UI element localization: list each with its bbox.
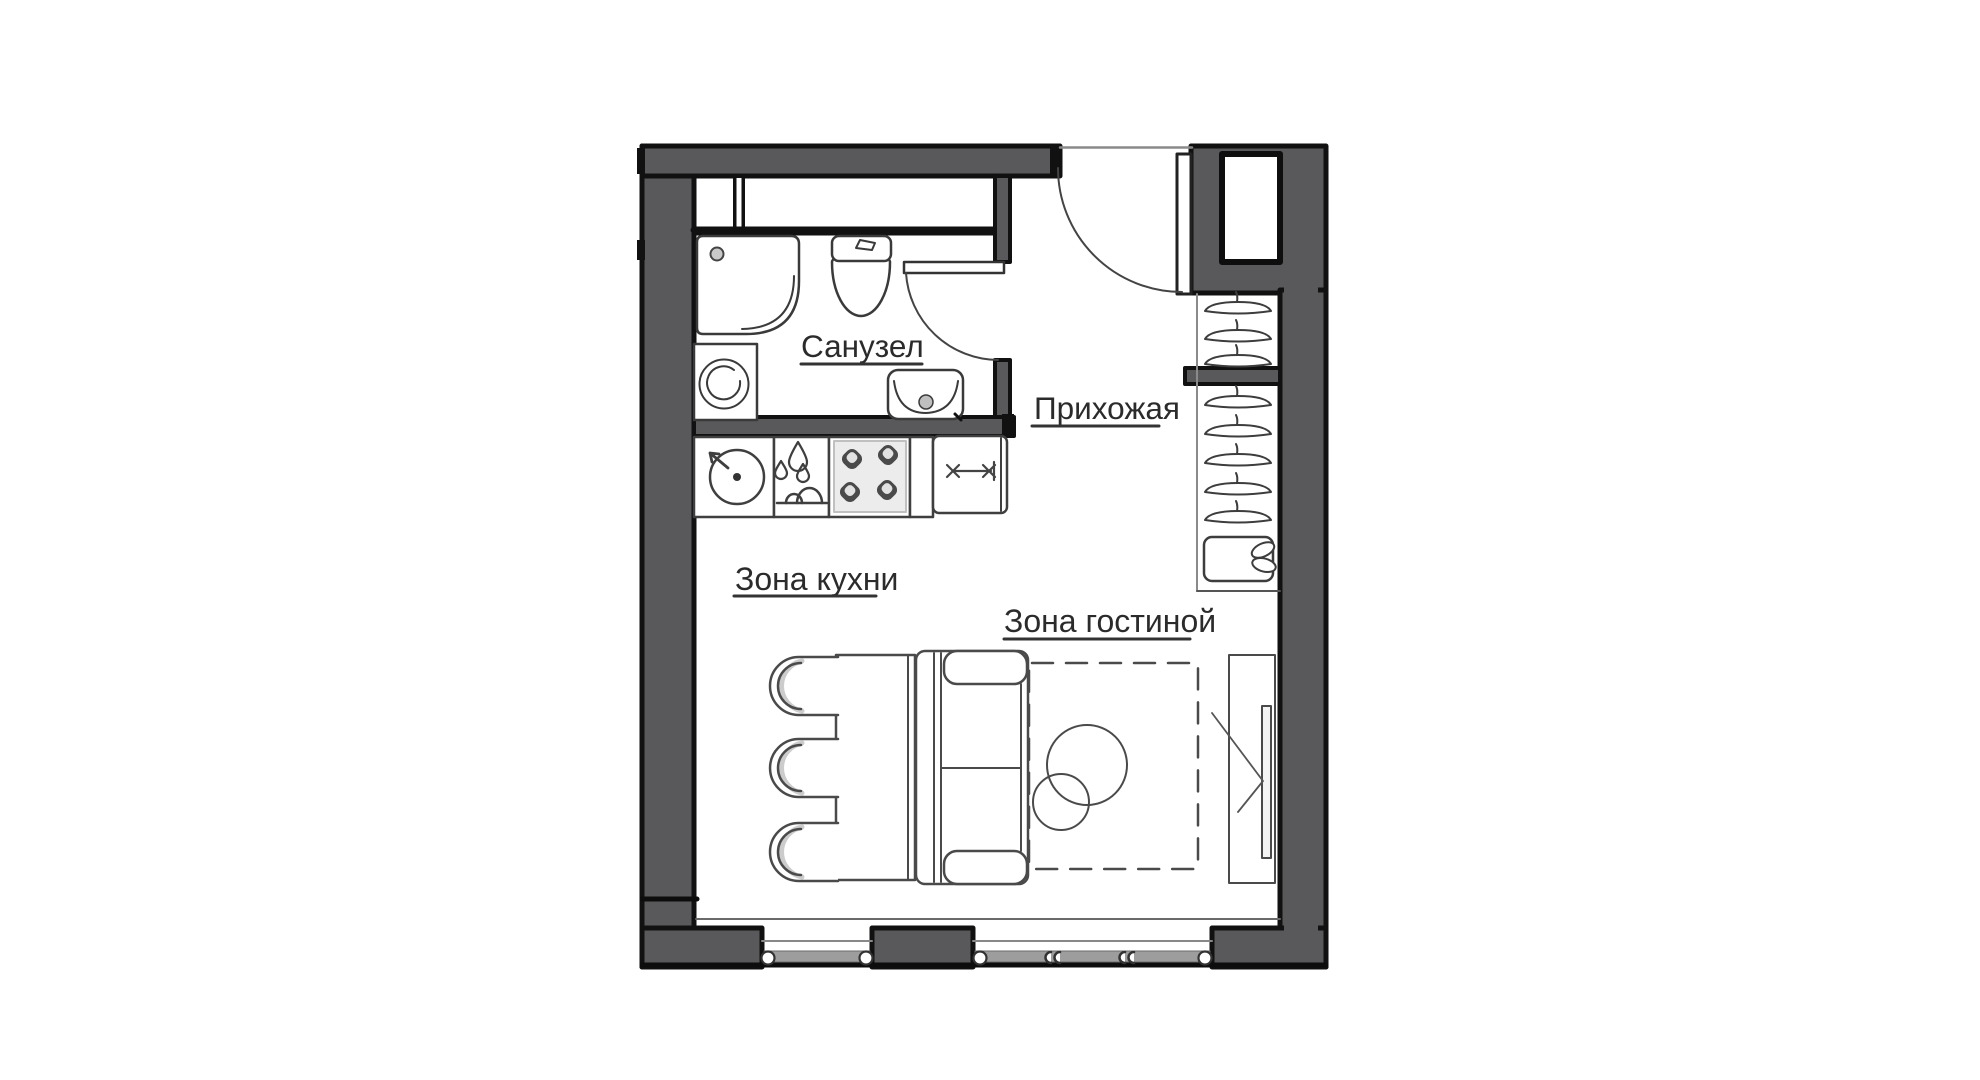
svg-text:Прихожая: Прихожая <box>1034 390 1180 426</box>
svg-text:Зона кухни: Зона кухни <box>735 561 898 597</box>
svg-text:Санузел: Санузел <box>801 328 924 364</box>
svg-text:Зона гостиной: Зона гостиной <box>1004 603 1216 639</box>
